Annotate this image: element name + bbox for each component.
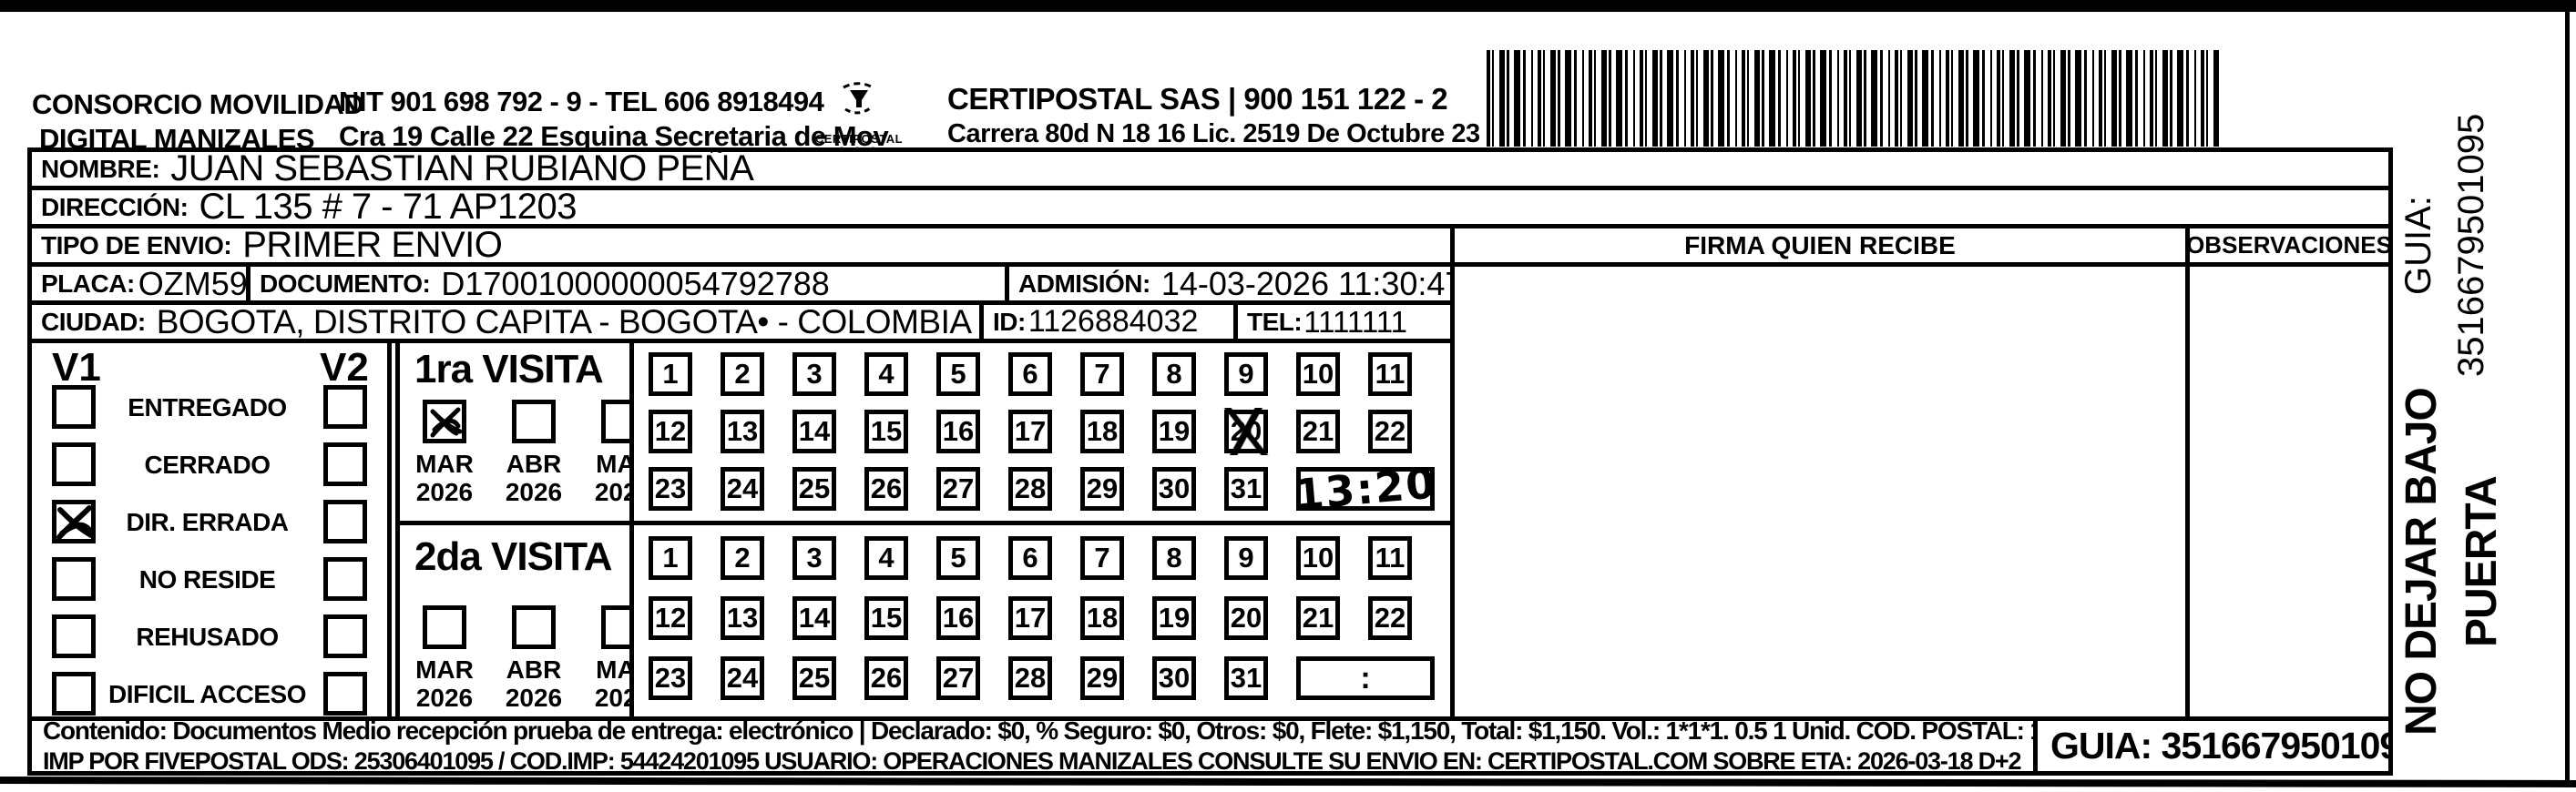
month-checkbox-mar-checked (423, 400, 466, 443)
month-checkbox-abr (512, 400, 556, 443)
day-box: 4 (864, 536, 908, 580)
second-visit-time-box: : (1296, 656, 1435, 700)
direccion-value: CL 135 # 7 - 71 AP1203 (199, 187, 577, 228)
cell-tel: TEL: 1111111 (1233, 300, 1455, 343)
day-box: 25 (792, 467, 836, 511)
tel-label: TEL: (1247, 308, 1302, 337)
first-visit-title: 1ra VISITA (414, 347, 603, 392)
scan-top-edge (0, 0, 2576, 12)
v1-checkbox-dir-errada-checked (52, 500, 96, 543)
sender-name: CONSORCIO MOVILIDAD DIGITAL MANIZALES (32, 87, 363, 157)
day-box: 7 (1080, 352, 1124, 396)
firma-header: FIRMA QUIEN RECIBE (1450, 224, 2190, 267)
day-box: 1 (649, 536, 692, 580)
day-box: 26 (864, 656, 908, 700)
day-box: 25 (792, 656, 836, 700)
month-year: 2026 (506, 684, 562, 713)
sender-name-line1: CONSORCIO MOVILIDAD (32, 87, 363, 122)
day-box: 11 (1368, 536, 1412, 580)
cell-id: ID: 1126884032 (979, 300, 1238, 343)
day-box: 1 (649, 352, 692, 396)
guia-number-cell: GUIA: 3516679501095 (2033, 716, 2393, 776)
v2-checkbox-rehusado (323, 614, 367, 658)
month-mar: MAR 2026 (411, 605, 478, 713)
status-label: NO RESIDE (100, 565, 314, 594)
day-box: 15 (864, 596, 908, 640)
month-year: 2026 (416, 478, 473, 507)
status-label: DIR. ERRADA (100, 508, 314, 537)
status-label: ENTREGADO (100, 393, 314, 422)
status-row-dir-errada: DIR. ERRADA (32, 500, 387, 545)
contenido-line: Contenido: Documentos Medio recepción pr… (43, 716, 2038, 746)
v2-checkbox-no-reside (323, 557, 367, 601)
footer-content-cell: Contenido: Documentos Medio recepción pr… (27, 716, 2038, 776)
side-note-rotated: NO DEJAR BAJO PUERTA GUIA: 3516679501095 (2392, 114, 2534, 746)
day-box: 3 (792, 536, 836, 580)
month-name: MAR (415, 656, 474, 684)
ciudad-value: BOGOTA, DISTRITO CAPITA - BOGOTA• - COLO… (157, 303, 972, 341)
v1-checkbox-dificil-acceso (52, 672, 96, 716)
second-visit-label-box: 2da VISITA MAR 2026 ABR 2026 MAY 2026 (395, 521, 634, 721)
row-tipo-envio: TIPO DE ENVIO: PRIMER ENVIO (27, 224, 1455, 267)
status-row-entregado: ENTREGADO (32, 385, 387, 431)
day-box: 10 (1296, 352, 1340, 396)
second-visit-days: 1234567891011121314151617181920212223242… (649, 536, 1437, 700)
day-box: 5 (936, 352, 980, 396)
certipostal-logo: CERTIPOSTAL ~‿~‿~ (809, 80, 909, 153)
day-box: 14 (792, 596, 836, 640)
day-box: 30 (1152, 656, 1196, 700)
status-row-cerrado: CERRADO (32, 442, 387, 488)
day-box: 13 (721, 596, 764, 640)
day-box: 10 (1296, 536, 1340, 580)
day-box: 30 (1152, 467, 1196, 511)
month-mar: MAR 2026 (411, 400, 478, 507)
day-box: 19 (1152, 596, 1196, 640)
month-name: ABR (506, 451, 562, 478)
side-guia-number: GUIA: 3516679501095 (2392, 114, 2534, 377)
v1-checkbox-entregado (52, 385, 96, 429)
id-value: 1126884032 (1028, 304, 1199, 340)
day-box: 18 (1080, 410, 1124, 453)
admision-label: ADMISIÓN: (1018, 269, 1150, 299)
day-box: 13 (721, 410, 764, 453)
day-box: 27 (936, 656, 980, 700)
day-box: 2 (721, 352, 764, 396)
observaciones-header: OBSERVACIONES (2185, 224, 2393, 267)
tracking-barcode (1487, 50, 2221, 147)
day-box: 18 (1080, 596, 1124, 640)
month-name: MAY (596, 656, 634, 684)
day-box: 20 (1224, 410, 1268, 453)
day-box: 15 (864, 410, 908, 453)
day-box: 21 (1296, 410, 1340, 453)
day-box: 16 (936, 596, 980, 640)
month-checkbox-abr (512, 605, 556, 649)
ciudad-label: CIUDAD: (41, 308, 146, 337)
first-visit-time-box: 13:20 (1296, 467, 1435, 511)
v2-checkbox-dir-errada (323, 500, 367, 543)
cell-placa: PLACA: OZM59F (27, 262, 250, 305)
id-label: ID: (993, 308, 1026, 337)
day-box: 19 (1152, 410, 1196, 453)
sender-nit-address: NIT 901 698 792 - 9 - TEL 606 8918494 Cr… (339, 85, 888, 154)
tel-value: 1111111 (1303, 305, 1407, 340)
first-visit-days: 1234567891011121314151617181920212223242… (649, 352, 1437, 511)
handwritten-check-scribble (422, 399, 469, 446)
second-visit-title: 2da VISITA (414, 534, 612, 580)
second-visit-day-grid: 1234567891011121314151617181920212223242… (629, 521, 1455, 721)
sender-nit: NIT 901 698 792 - 9 - TEL 606 8918494 (339, 85, 888, 119)
scan-right-edge (2565, 12, 2570, 786)
v1-checkbox-cerrado (52, 442, 96, 486)
day-box: 9 (1224, 536, 1268, 580)
day-box: 6 (1008, 536, 1052, 580)
month-abr: ABR 2026 (500, 400, 567, 507)
v2-checkbox-entregado (323, 385, 367, 429)
month-year: 2026 (595, 684, 634, 713)
day-box: 3 (792, 352, 836, 396)
second-visit-months: MAR 2026 ABR 2026 MAY 2026 (411, 605, 634, 713)
day-box: 16 (936, 410, 980, 453)
guia-number: GUIA: 3516679501095 (2050, 725, 2393, 767)
day-box: 6 (1008, 352, 1052, 396)
v2-checkbox-cerrado (323, 442, 367, 486)
day-box: 29 (1080, 656, 1124, 700)
day-box: 9 (1224, 352, 1268, 396)
tipo-envio-label: TIPO DE ENVIO: (41, 231, 231, 260)
day-box: 20 (1224, 596, 1268, 640)
day-box: 7 (1080, 536, 1124, 580)
day-box: 2 (721, 536, 764, 580)
v2-checkbox-dificil-acceso (323, 672, 367, 716)
documento-label: DOCUMENTO: (260, 269, 430, 299)
status-row-no-reside: NO RESIDE (32, 557, 387, 603)
certipostal-logo-icon (829, 80, 889, 129)
row-nombre: NOMBRE: JUAN SEBASTIAN RUBIANO PEÑA (27, 147, 2393, 190)
day-box: 8 (1152, 536, 1196, 580)
day-box: 31 (1224, 467, 1268, 511)
day-box: 26 (864, 467, 908, 511)
day-box: 5 (936, 536, 980, 580)
no-dejar-bajo-puerta-text: NO DEJAR BAJO PUERTA (2392, 377, 2534, 746)
day-box: 24 (721, 467, 764, 511)
scanned-shipping-label: CONSORCIO MOVILIDAD DIGITAL MANIZALES NI… (0, 0, 2576, 792)
day-box: 14 (792, 410, 836, 453)
cell-admision: ADMISIÓN: 14-03-2026 11:30:47 (1005, 262, 1455, 305)
v1-checkbox-rehusado (52, 614, 96, 658)
v1-header: V1 (52, 345, 101, 391)
handwritten-time: 13:20 (1293, 458, 1439, 519)
placa-label: PLACA: (41, 269, 135, 299)
placa-value: OZM59F (138, 265, 250, 303)
row-direccion: DIRECCIÓN: CL 135 # 7 - 71 AP1203 (27, 186, 2393, 228)
first-visit-months: MAR 2026 ABR 2026 MAY 2026 (411, 400, 634, 507)
day-box: 17 (1008, 410, 1052, 453)
printed-colon: : (1360, 661, 1370, 696)
cell-documento: DOCUMENTO: D17001000000054792788 (246, 262, 1009, 305)
documento-value: D17001000000054792788 (441, 265, 829, 303)
day-box: 24 (721, 656, 764, 700)
month-name: MAY (596, 451, 634, 478)
day-box: 23 (649, 656, 692, 700)
month-may: MAY 2026 (589, 605, 634, 713)
status-row-rehusado: REHUSADO (32, 614, 387, 660)
day-box: 17 (1008, 596, 1052, 640)
admision-value: 14-03-2026 11:30:47 (1161, 265, 1455, 303)
scan-bottom-edge (0, 777, 2576, 787)
day-box: 22 (1368, 410, 1412, 453)
status-label: REHUSADO (100, 623, 314, 652)
month-year: 2026 (416, 684, 473, 713)
day-box: 11 (1368, 352, 1412, 396)
month-may: MAY 2026 (589, 400, 634, 507)
day-box: 28 (1008, 467, 1052, 511)
month-checkbox-mar (423, 605, 466, 649)
status-label: DIFICIL ACCESO (100, 680, 314, 709)
direccion-label: DIRECCIÓN: (41, 193, 188, 222)
month-year: 2026 (506, 478, 562, 507)
day-box: 4 (864, 352, 908, 396)
nombre-value: JUAN SEBASTIAN RUBIANO PEÑA (170, 148, 753, 189)
day-box: 28 (1008, 656, 1052, 700)
day-box: 12 (649, 410, 692, 453)
nombre-label: NOMBRE: (41, 155, 159, 184)
day-box: 31 (1224, 656, 1268, 700)
first-visit-day-grid: 1234567891011121314151617181920212223242… (629, 339, 1455, 525)
firma-header-text: FIRMA QUIEN RECIBE (1684, 231, 1956, 260)
tipo-envio-value: PRIMER ENVIO (242, 225, 502, 266)
day-box: 21 (1296, 596, 1340, 640)
day-box: 12 (649, 596, 692, 640)
first-visit-label-box: 1ra VISITA MAR 2026 ABR 2026 MAY 2026 (395, 339, 634, 525)
month-abr: ABR 2026 (500, 605, 567, 713)
status-row-dificil-acceso: DIFICIL ACCESO (32, 672, 387, 717)
firma-signature-area (1450, 262, 2190, 721)
status-label: CERRADO (100, 451, 314, 480)
day-box: 27 (936, 467, 980, 511)
month-name: MAR (415, 451, 474, 478)
month-name: ABR (506, 656, 562, 684)
day-box: 8 (1152, 352, 1196, 396)
day-box: 29 (1080, 467, 1124, 511)
month-year: 2026 (595, 478, 634, 507)
status-panel: V1 V2 ENTREGADO CERRADO DIR. ERRADA NO R… (27, 339, 392, 721)
handwritten-x-mark (51, 499, 98, 546)
day-box: 22 (1368, 596, 1412, 640)
observaciones-header-text: OBSERVACIONES (2186, 231, 2392, 259)
observaciones-area (2185, 262, 2393, 721)
v1-checkbox-no-reside (52, 557, 96, 601)
cell-ciudad: CIUDAD: BOGOTA, DISTRITO CAPITA - BOGOTA… (27, 300, 984, 343)
imp-line: IMP POR FIVEPOSTAL ODS: 25306401095 / CO… (43, 747, 2020, 776)
day-box: 23 (649, 467, 692, 511)
v2-header: V2 (320, 345, 369, 391)
